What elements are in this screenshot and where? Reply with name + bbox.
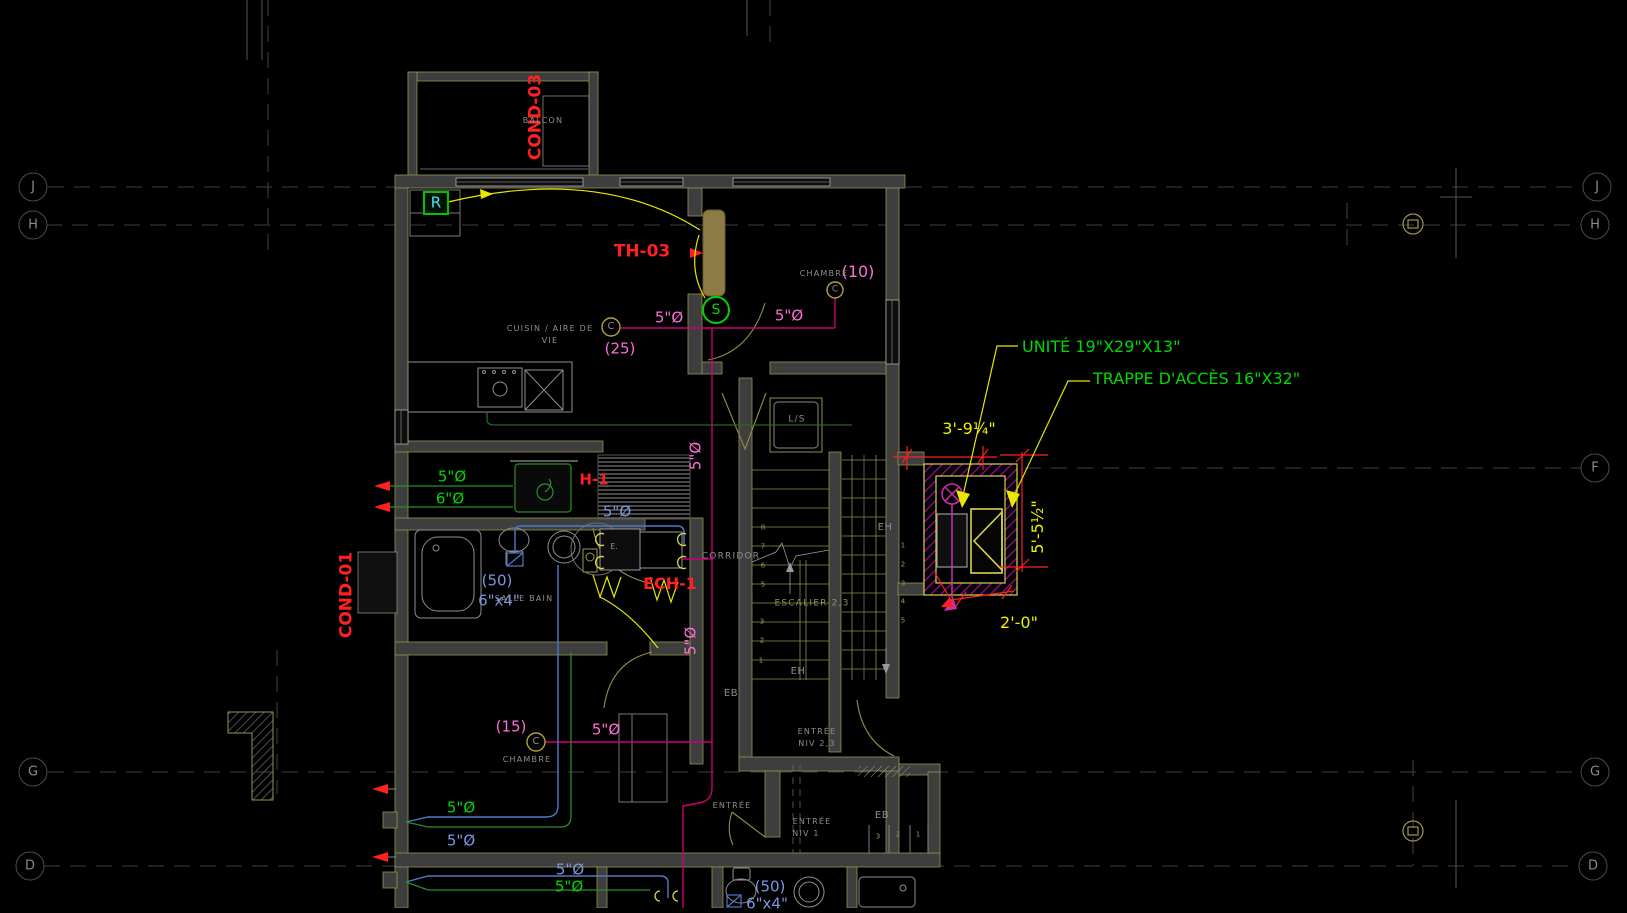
stair-left (752, 470, 829, 680)
thermostat-chambre1 (827, 282, 843, 298)
sink-h1 (510, 461, 578, 512)
thermostat-kitchen (602, 318, 620, 336)
threshold-hatch (858, 766, 910, 777)
mech-closet-detail (924, 464, 1017, 611)
kitchen-fixtures (408, 190, 572, 412)
balcony-deck (420, 96, 589, 169)
access-hatch-rect (971, 509, 1002, 573)
island-hatch (598, 455, 690, 519)
cad-viewport[interactable]: COND-03COND-01TH-03H-1ECH-1UNITÉ 19"X29"… (0, 0, 1627, 908)
thermostat-chambre2 (527, 733, 545, 751)
door-th03-slab (703, 210, 725, 296)
plumbing-chase-lines (793, 765, 800, 853)
hatched-column (228, 712, 273, 800)
bottom-fixtures (726, 868, 915, 907)
windows (395, 178, 899, 444)
plan-linework (0, 0, 1627, 908)
stair-right (842, 455, 890, 680)
flex-clips (596, 534, 686, 902)
switch-circle (703, 297, 729, 323)
relay-box (424, 192, 448, 214)
grid-marker-top (1403, 214, 1423, 234)
grid-lines (44, 0, 1582, 866)
